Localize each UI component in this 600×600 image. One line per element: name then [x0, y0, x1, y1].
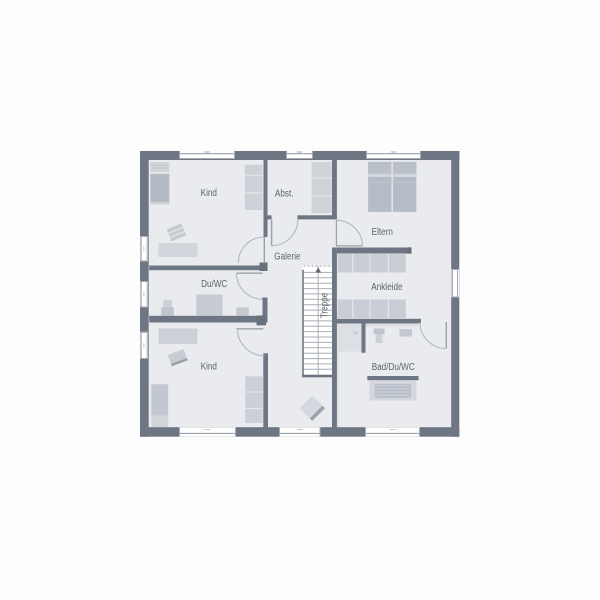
svg-text:Kind: Kind	[201, 360, 217, 371]
svg-text:Treppe: Treppe	[319, 293, 330, 319]
svg-text:Galerie: Galerie	[274, 251, 300, 262]
svg-text:Bad/Du/WC: Bad/Du/WC	[372, 361, 415, 372]
svg-text:Eltern: Eltern	[372, 226, 393, 237]
svg-text:Ankleide: Ankleide	[371, 281, 402, 292]
svg-text:Kind: Kind	[201, 187, 217, 198]
svg-text:Abst.: Abst.	[275, 188, 294, 199]
svg-text:Du/WC: Du/WC	[201, 278, 228, 289]
